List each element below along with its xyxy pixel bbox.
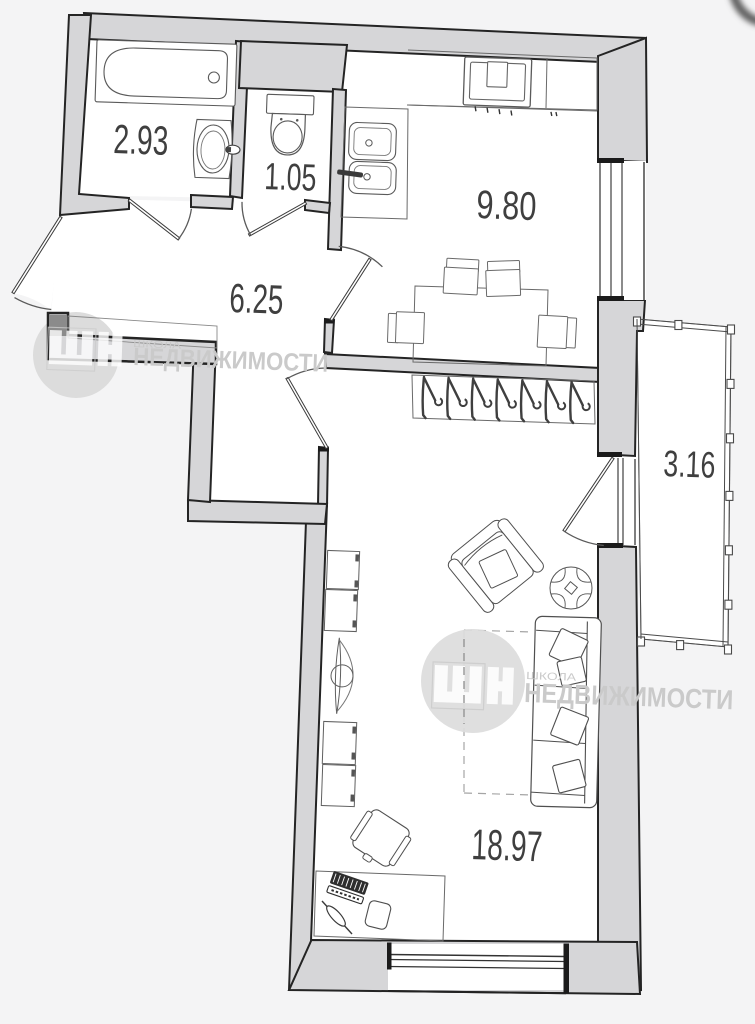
svg-text:18.97: 18.97 <box>471 821 544 871</box>
svg-text:6.25: 6.25 <box>229 275 285 323</box>
svg-text:1.05: 1.05 <box>264 156 317 200</box>
svg-text:9.80: 9.80 <box>476 183 537 229</box>
svg-text:2.93: 2.93 <box>113 116 170 164</box>
svg-text:3.16: 3.16 <box>663 443 716 486</box>
